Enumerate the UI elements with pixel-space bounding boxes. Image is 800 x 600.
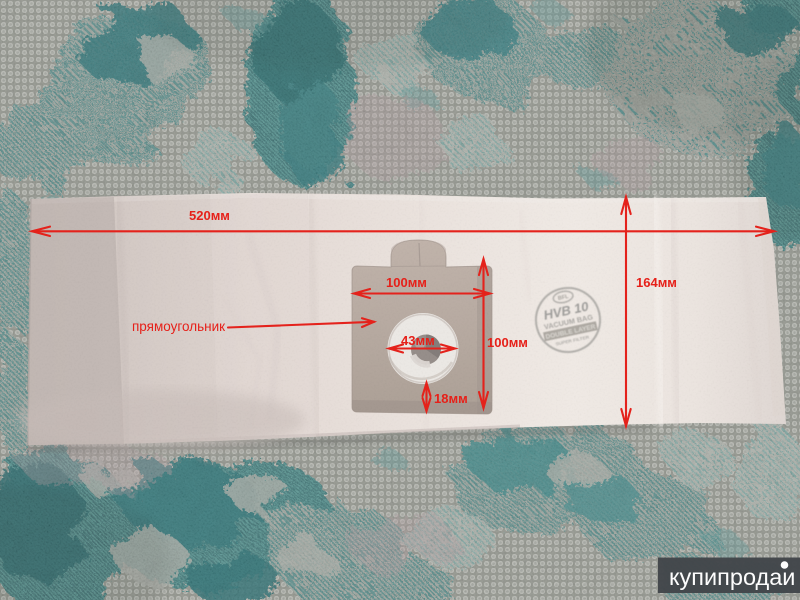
svg-text:18мм: 18мм — [434, 391, 468, 406]
svg-text:купипродаи: купипродаи — [669, 564, 795, 590]
svg-text:164мм: 164мм — [636, 275, 677, 290]
svg-text:100мм: 100мм — [386, 275, 427, 290]
svg-text:520мм: 520мм — [189, 208, 230, 223]
svg-text:43мм: 43мм — [401, 333, 435, 348]
svg-text:прямоугольник: прямоугольник — [132, 319, 225, 334]
svg-text:100мм: 100мм — [487, 335, 528, 350]
